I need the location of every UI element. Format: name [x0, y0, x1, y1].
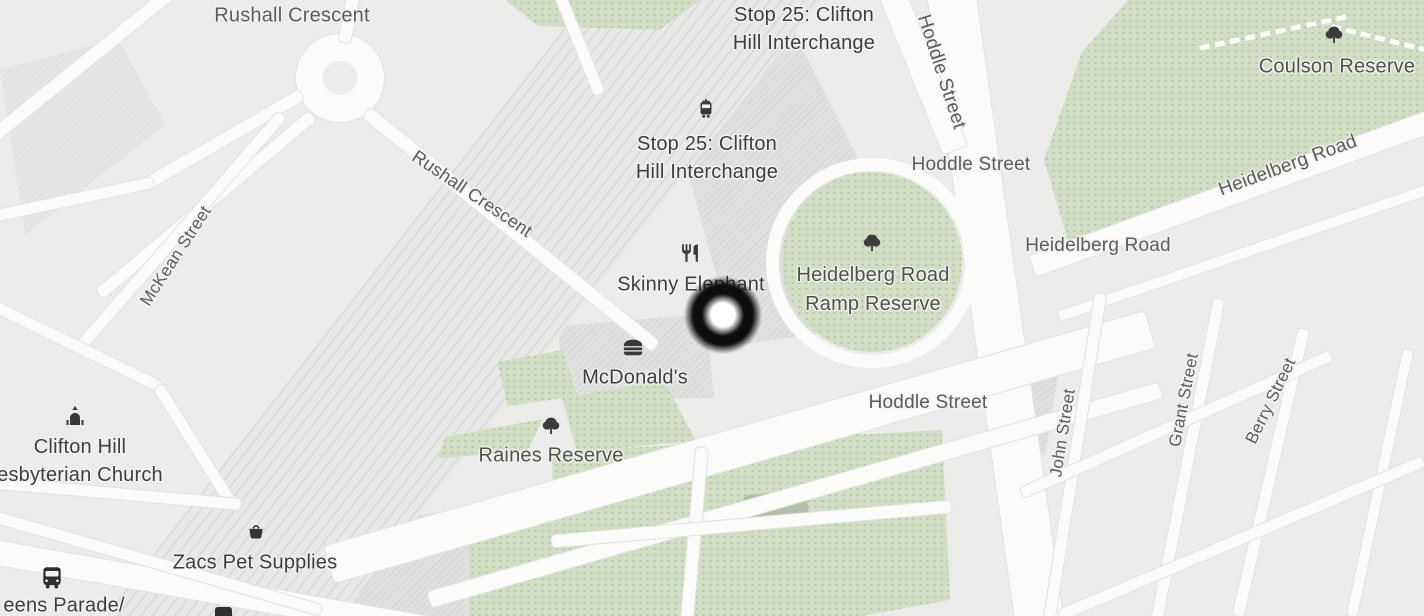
poi-label-stop25-interchange-top[interactable]: Stop 25: Clifton Hill Interchange: [733, 1, 875, 57]
cursor-marker: [683, 275, 763, 355]
street-label-hoddle-street-middle: Hoddle Street: [869, 392, 988, 414]
bus-icon[interactable]: [39, 564, 65, 590]
street-label-heidelberg-road: Heidelberg Road: [1025, 235, 1171, 257]
poi-label-zacs-pet-supplies[interactable]: Zacs Pet Supplies: [173, 552, 338, 575]
poi-label-line: Hill Interchange: [733, 32, 875, 54]
partial-poi-icon: [215, 607, 232, 616]
poi-label-raines-reserve[interactable]: Raines Reserve: [478, 445, 623, 468]
poi-label-line: Heidelberg Road: [796, 264, 949, 286]
road-church-block-b: [153, 383, 237, 508]
poi-label-line: Ramp Reserve: [805, 293, 941, 315]
shopping-basket-icon[interactable]: [246, 521, 266, 541]
poi-label-queens-parade[interactable]: eens Parade/: [3, 595, 124, 616]
burger-icon[interactable]: [622, 336, 644, 358]
map-canvas[interactable]: Rushall Crescent Stop 25: Clifton Hill I…: [0, 0, 1424, 616]
street-label-hoddle-street-east: Hoddle Street: [912, 154, 1031, 176]
poi-label-line: Clifton Hill: [34, 436, 126, 458]
road-church-block-a: [0, 299, 163, 392]
poi-label-mcdonalds[interactable]: McDonald's: [582, 367, 688, 390]
tree-icon[interactable]: [1323, 23, 1345, 45]
poi-label-presbyterian-church[interactable]: Clifton Hill esbyterian Church: [0, 433, 163, 489]
tram-stop-icon[interactable]: [695, 98, 717, 120]
church-icon[interactable]: [63, 404, 87, 428]
poi-label-stop25-interchange[interactable]: Stop 25: Clifton Hill Interchange: [636, 130, 778, 186]
poi-label-line: Stop 25: Clifton: [734, 4, 874, 26]
restaurant-icon[interactable]: [680, 243, 701, 264]
poi-label-line: Hill Interchange: [636, 161, 778, 183]
tree-icon[interactable]: [861, 231, 883, 253]
poi-label-line: Stop 25: Clifton: [637, 133, 777, 155]
street-label-rushall-crescent: Rushall Crescent: [214, 5, 370, 28]
tree-icon[interactable]: [540, 414, 562, 436]
poi-label-ramp-reserve[interactable]: Heidelberg Road Ramp Reserve: [796, 261, 949, 319]
poi-label-coulson-reserve[interactable]: Coulson Reserve: [1259, 56, 1415, 79]
poi-label-line: esbyterian Church: [0, 464, 163, 486]
